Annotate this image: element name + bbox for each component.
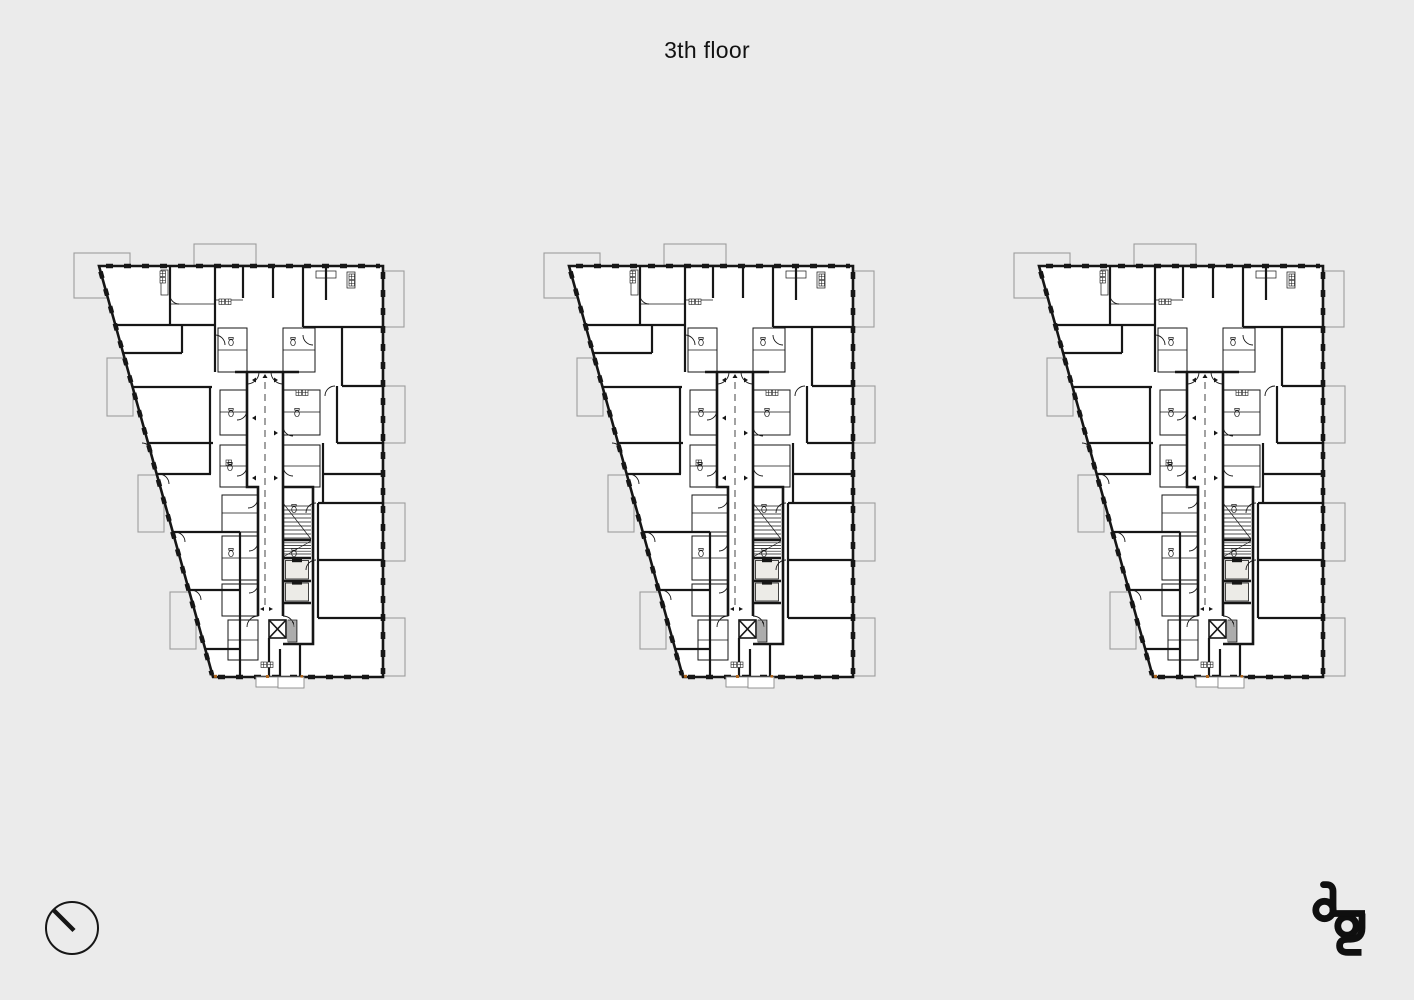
floor-plan-left <box>70 240 415 692</box>
floor-plan-right <box>1010 240 1355 692</box>
ag-monogram-logo-icon <box>1303 876 1375 964</box>
presentation-sheet: 3th floor <box>0 0 1414 1000</box>
floor-plan-center <box>540 240 885 692</box>
page-title: 3th floor <box>0 37 1414 64</box>
north-indicator-icon <box>43 899 101 957</box>
